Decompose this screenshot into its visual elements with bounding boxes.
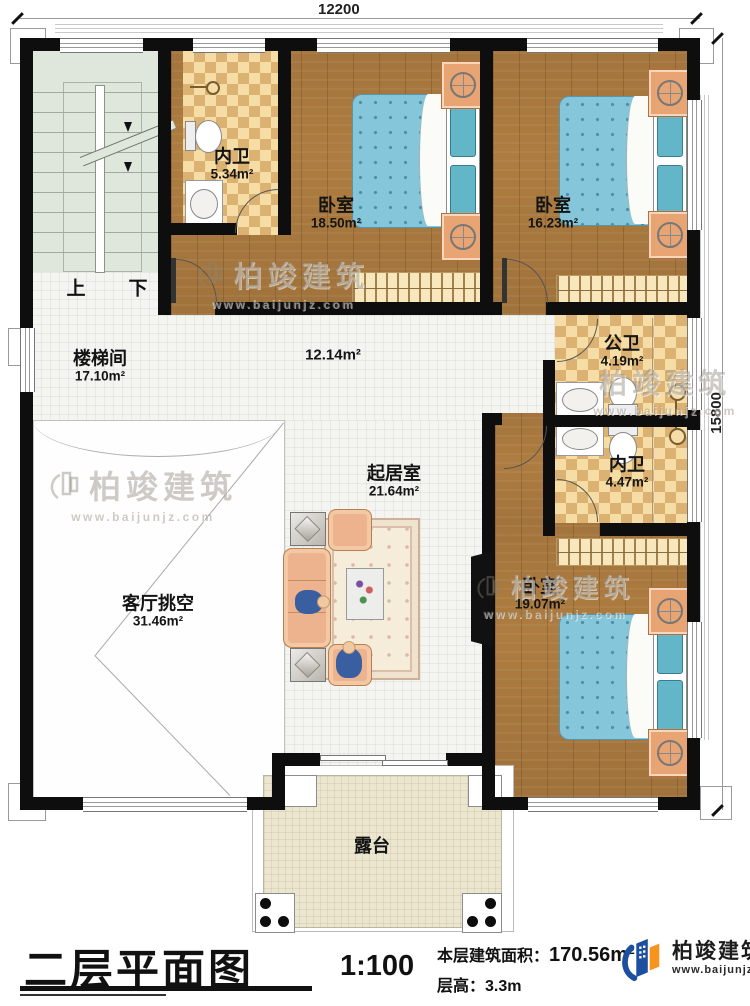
terrace-post: [283, 775, 317, 807]
bed: [352, 94, 480, 226]
shower-partition: [652, 428, 653, 521]
room-label-bedroom1: 卧室18.50m²: [311, 195, 361, 230]
nightstand: [442, 62, 484, 108]
wall: [158, 223, 237, 235]
brand-logo: 柏竣建筑 www.baijunjz.com: [620, 935, 750, 981]
sink-basin: [190, 189, 218, 219]
wall: [265, 38, 317, 51]
post-dot: [260, 916, 271, 927]
floor-area-row: 本层建筑面积：170.56m²: [437, 938, 635, 973]
wall: [283, 753, 320, 766]
room-label-hallway: 12.14m²: [305, 348, 361, 365]
bed-pillow-panel: [446, 94, 480, 228]
room-label-bath-inner: 内卫4.47m²: [606, 454, 649, 489]
title-underline-thin: [20, 994, 166, 996]
room-label-stairwell: 楼梯间17.10m²: [73, 348, 127, 383]
wall: [480, 38, 493, 315]
dimension-line-top: [20, 18, 700, 19]
post-dot: [485, 916, 496, 927]
stair-up-label: 上: [66, 274, 85, 301]
stair-down-label: 下: [128, 274, 147, 301]
window: [83, 797, 247, 812]
sliding-door: [382, 760, 448, 766]
wall: [20, 390, 33, 810]
wardrobe: [556, 538, 688, 566]
towel-knob: [669, 384, 686, 401]
window: [687, 318, 702, 410]
corner-pier: [700, 786, 732, 820]
window: [60, 38, 143, 53]
nightstand: [649, 588, 691, 634]
wall: [446, 753, 482, 766]
towel-knob: [669, 428, 686, 445]
dimension-right-value: 15800: [708, 392, 725, 434]
window: [317, 38, 450, 53]
wall: [656, 797, 700, 810]
floor-height-row: 层高：3.3m: [437, 973, 635, 1001]
room-label-bedroom2: 卧室16.23m²: [528, 195, 578, 230]
end-table: [290, 648, 326, 682]
wardrobe: [352, 272, 482, 304]
sink-basin: [562, 388, 598, 412]
floor-area-label: 本层建筑面积：: [437, 948, 549, 965]
room-label-void: 客厅挑空31.46m²: [122, 593, 194, 628]
wall: [495, 413, 502, 425]
coffee-table: [346, 568, 384, 620]
window: [687, 100, 702, 230]
window: [527, 38, 658, 53]
wall: [20, 38, 33, 330]
wall: [493, 302, 502, 315]
person: [336, 648, 362, 678]
wall: [278, 38, 291, 235]
post-dot: [260, 898, 271, 909]
pillow: [657, 680, 682, 732]
terrace-post: [462, 893, 502, 933]
nightstand: [442, 214, 484, 260]
wall: [20, 797, 85, 810]
window: [687, 622, 702, 738]
pillow: [450, 102, 475, 157]
stair-arrow: [124, 162, 132, 172]
room-label-public-bath: 公卫4.19m²: [601, 333, 644, 368]
top-sill-lines: [55, 24, 663, 36]
wall: [215, 302, 482, 315]
window: [193, 38, 265, 53]
wall: [687, 38, 700, 102]
wall: [158, 38, 171, 315]
end-table: [290, 512, 326, 546]
floor-height-value: 3.3m: [485, 978, 521, 995]
bed-blanket: [419, 94, 449, 226]
dimension-top-value: 12200: [318, 1, 360, 18]
room-label-bedroom3: 卧室19.07m²: [515, 576, 565, 611]
shower-partition: [652, 318, 653, 413]
wall: [555, 415, 687, 427]
sink-basin: [562, 428, 598, 450]
wall: [687, 408, 700, 432]
stair-rail: [95, 85, 105, 273]
wardrobe: [556, 275, 688, 304]
stair-arrow: [124, 122, 132, 132]
pillow: [657, 165, 682, 218]
wall: [543, 360, 555, 536]
pillow: [450, 165, 475, 220]
nightstand: [649, 730, 691, 776]
window: [687, 430, 702, 522]
wall: [687, 520, 700, 624]
window: [528, 797, 658, 812]
room-label-living: 起居室21.64m²: [367, 463, 421, 498]
room-label-terrace: 露台: [354, 836, 390, 856]
sliding-door: [320, 755, 386, 761]
post-dot: [467, 916, 478, 927]
nightstand: [649, 70, 691, 116]
post-dot: [278, 916, 289, 927]
plan-info: 本层建筑面积：170.56m² 层高：3.3m: [437, 938, 635, 1001]
floor-plan: 上 下: [0, 0, 750, 1006]
brand-logo-icon: [620, 935, 666, 981]
plan-scale: 1:100: [340, 950, 414, 983]
brand-url: www.baijunjz.com: [672, 964, 750, 976]
wall: [687, 228, 700, 320]
post-dot: [485, 898, 496, 909]
person: [295, 590, 323, 614]
tv: [471, 551, 493, 647]
towel-knob: [206, 81, 220, 95]
title-underline: [20, 986, 312, 991]
armchair: [328, 509, 372, 551]
room-label-bath-top: 内卫5.34m²: [211, 146, 254, 181]
brand-name: 柏竣建筑: [672, 940, 750, 963]
nightstand: [649, 212, 691, 258]
wall: [600, 523, 687, 536]
terrace-post: [255, 893, 295, 933]
window: [20, 328, 35, 392]
floor-height-label: 层高：: [437, 978, 485, 995]
wall: [546, 302, 687, 315]
